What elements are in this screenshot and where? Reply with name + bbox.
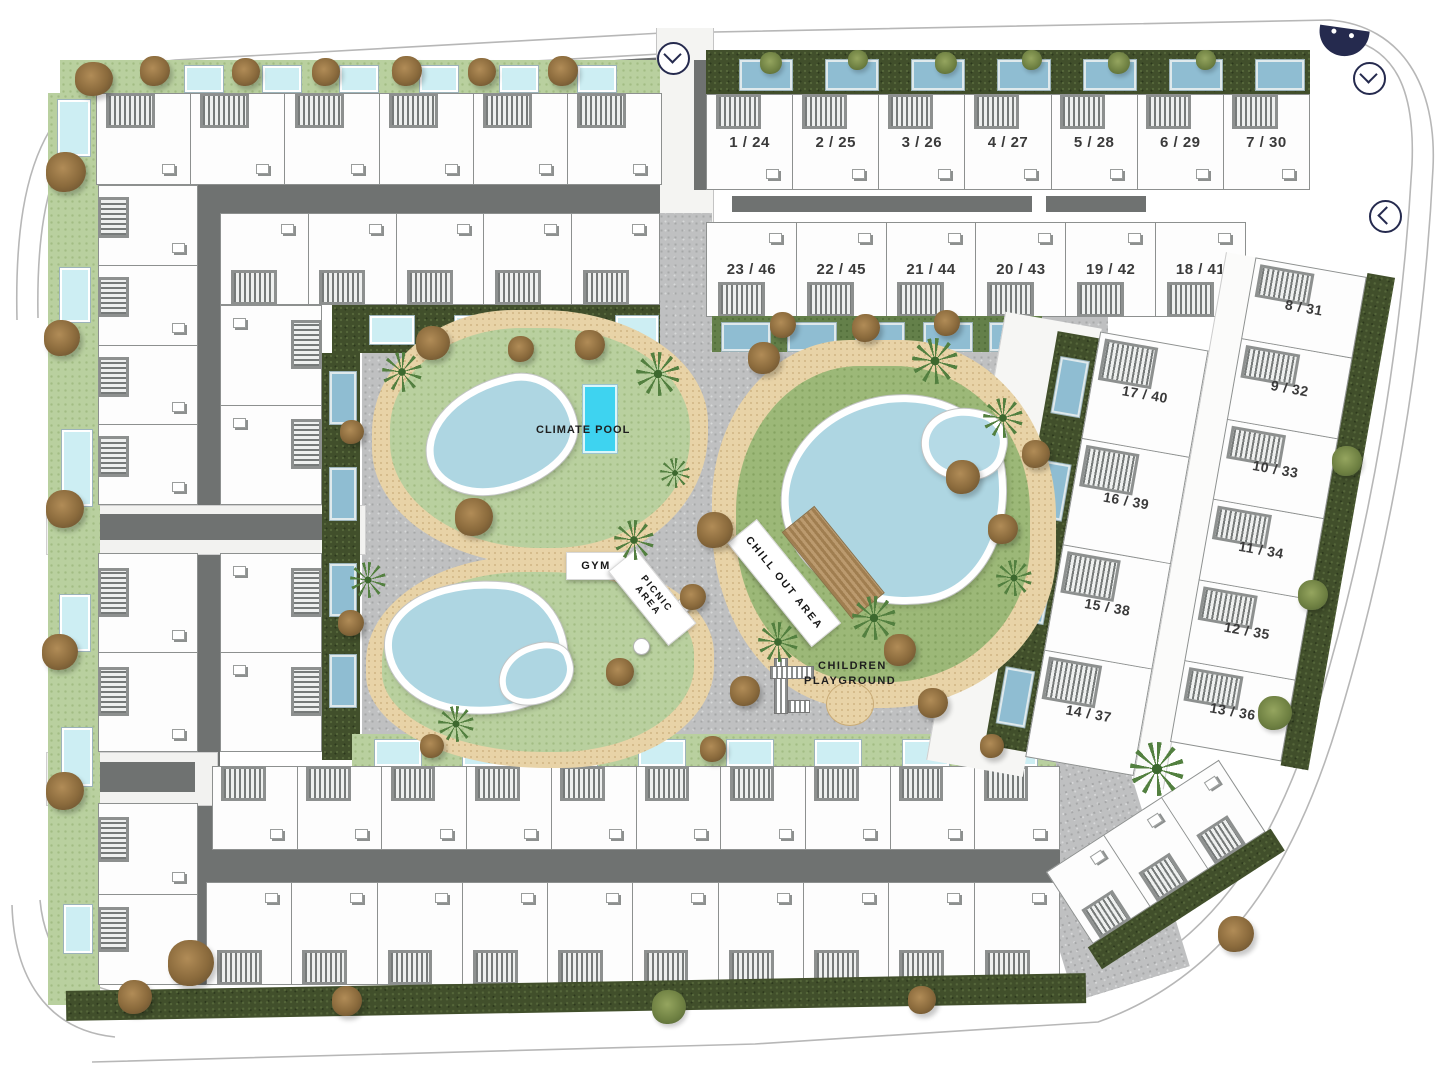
playground-sand-circle — [826, 682, 874, 726]
unit-label: 15 / 38 — [1045, 545, 1170, 669]
west-column-b — [98, 553, 198, 752]
unit-cell: 22 / 45 — [797, 222, 887, 317]
unit-label: 2 / 25 — [793, 95, 878, 189]
unit-label: 23 / 46 — [707, 223, 796, 316]
unit-cell: 15 / 38 — [1044, 545, 1171, 670]
house-cell — [292, 882, 377, 985]
pool — [375, 740, 421, 766]
unit-cell: 3 / 26 — [879, 94, 965, 190]
tree-icon — [935, 52, 957, 74]
house-cell — [397, 213, 485, 305]
carport-bar-1 — [732, 196, 1032, 212]
west-column-a — [98, 185, 198, 505]
palm-icon — [438, 706, 474, 742]
pool — [370, 316, 414, 344]
palm-icon — [350, 562, 386, 598]
palm-icon — [382, 352, 422, 392]
house-cell — [380, 93, 474, 185]
north-walk-paving — [658, 213, 712, 299]
street-low-left-lane — [95, 762, 195, 792]
house-cell — [548, 882, 633, 985]
tree-icon — [760, 52, 782, 74]
palm-icon — [614, 520, 654, 560]
unit-cell: 16 / 39 — [1063, 439, 1190, 564]
unit-cell: 7 / 30 — [1224, 94, 1310, 190]
house-cell — [212, 766, 298, 850]
entrance-marker-chevron-down-icon — [1353, 62, 1386, 95]
house-cell — [637, 766, 722, 850]
house-cell — [463, 882, 548, 985]
pool — [815, 740, 861, 766]
unit-cell: 21 / 44 — [887, 222, 977, 317]
pool — [420, 66, 458, 92]
unit-label: 16 / 39 — [1064, 439, 1189, 563]
house-cell — [220, 305, 322, 406]
unit-label: 5 / 28 — [1052, 95, 1137, 189]
children-playground-label-line2: PLAYGROUND — [804, 675, 896, 687]
unit-label: 7 / 30 — [1224, 95, 1309, 189]
unit-label: 22 / 45 — [797, 223, 886, 316]
playground-equipment-icon — [788, 700, 810, 713]
northeast-row-1: 1 / 24 2 / 25 3 / 26 4 / 27 5 / 28 6 / 2… — [706, 94, 1310, 190]
house-cell — [206, 882, 292, 985]
palm-icon — [912, 338, 958, 384]
house-cell — [572, 213, 660, 305]
unit-label: 3 / 26 — [879, 95, 964, 189]
palm-icon — [660, 458, 690, 488]
house-cell — [191, 93, 285, 185]
picnic-table — [633, 638, 650, 655]
pool — [330, 655, 356, 707]
unit-cell: 2 / 25 — [793, 94, 879, 190]
unit-cell: 6 / 29 — [1138, 94, 1224, 190]
house-cell — [98, 803, 198, 895]
spa-dot — [1331, 28, 1337, 34]
palm-icon — [852, 596, 896, 640]
house-cell — [98, 425, 198, 505]
alley-top-left — [197, 185, 660, 213]
house-cell — [552, 766, 637, 850]
unit-cell: 17 / 40 — [1081, 332, 1208, 458]
house-cell — [467, 766, 552, 850]
tree-icon — [1108, 52, 1130, 74]
unit-label: 21 / 44 — [887, 223, 976, 316]
house-cell — [98, 266, 198, 346]
south-row-2 — [206, 882, 1060, 985]
palm-icon — [983, 398, 1023, 438]
house-cell — [309, 213, 397, 305]
pool — [578, 66, 616, 92]
site-plan: 1 / 24 2 / 25 3 / 26 4 / 27 5 / 28 6 / 2… — [0, 0, 1442, 1080]
unit-label: 1 / 24 — [707, 95, 792, 189]
west-second-house-row — [220, 213, 660, 305]
house-cell — [719, 882, 804, 985]
house-cell — [220, 213, 309, 305]
house-cell — [96, 93, 191, 185]
house-cell — [721, 766, 806, 850]
house-cell — [98, 553, 198, 653]
house-cell — [98, 653, 198, 752]
house-cell — [568, 93, 662, 185]
house-cell — [98, 185, 198, 266]
carport-bar-2 — [1046, 196, 1146, 212]
pool — [1256, 60, 1304, 90]
house-cell — [804, 882, 889, 985]
unit-label: 4 / 27 — [965, 95, 1050, 189]
house-cell — [382, 766, 467, 850]
unit-label: 17 / 40 — [1083, 333, 1208, 457]
pool — [727, 740, 773, 766]
pool — [64, 905, 92, 953]
house-cell — [298, 766, 383, 850]
unit-cell: 4 / 27 — [965, 94, 1051, 190]
unit-cell: 5 / 28 — [1052, 94, 1138, 190]
west-top-house-row — [96, 93, 662, 185]
house-cell — [220, 406, 322, 506]
house-cell — [220, 653, 322, 752]
house-cell — [474, 93, 568, 185]
house-cell — [220, 553, 322, 653]
unit-label: 6 / 29 — [1138, 95, 1223, 189]
house-cell — [378, 882, 463, 985]
entrance-marker-chevron-down-icon — [657, 42, 690, 75]
pool — [263, 66, 301, 92]
west-inner-column-a — [220, 305, 322, 505]
garden-strip-west — [48, 93, 100, 1005]
unit-cell: 1 / 24 — [706, 94, 793, 190]
spa-dot — [1349, 33, 1355, 39]
children-playground-label-line1: CHILDREN — [818, 660, 887, 672]
pool — [340, 66, 378, 92]
palm-icon — [758, 622, 798, 662]
house-cell — [975, 882, 1060, 985]
palm-icon — [996, 560, 1032, 596]
climate-pool — [583, 385, 617, 453]
pool — [500, 66, 538, 92]
entrance-marker-chevron-left-icon — [1369, 200, 1402, 233]
pool — [330, 468, 356, 520]
house-cell — [98, 346, 198, 426]
pool — [185, 66, 223, 92]
house-cell — [285, 93, 379, 185]
palm-icon — [636, 352, 680, 396]
pool — [58, 100, 90, 156]
house-cell — [889, 882, 974, 985]
palm-icon — [1130, 742, 1184, 796]
pool — [60, 268, 90, 322]
climate-pool-label: CLIMATE POOL — [536, 424, 630, 436]
house-cell — [484, 213, 572, 305]
gym-label: GYM — [581, 560, 611, 572]
unit-cell: 23 / 46 — [706, 222, 797, 317]
west-inner-column-b — [220, 553, 322, 752]
house-cell — [806, 766, 891, 850]
alley-bottom — [212, 850, 1060, 882]
street-mid-left-lane — [100, 514, 330, 540]
house-cell — [633, 882, 718, 985]
pool — [330, 372, 356, 424]
